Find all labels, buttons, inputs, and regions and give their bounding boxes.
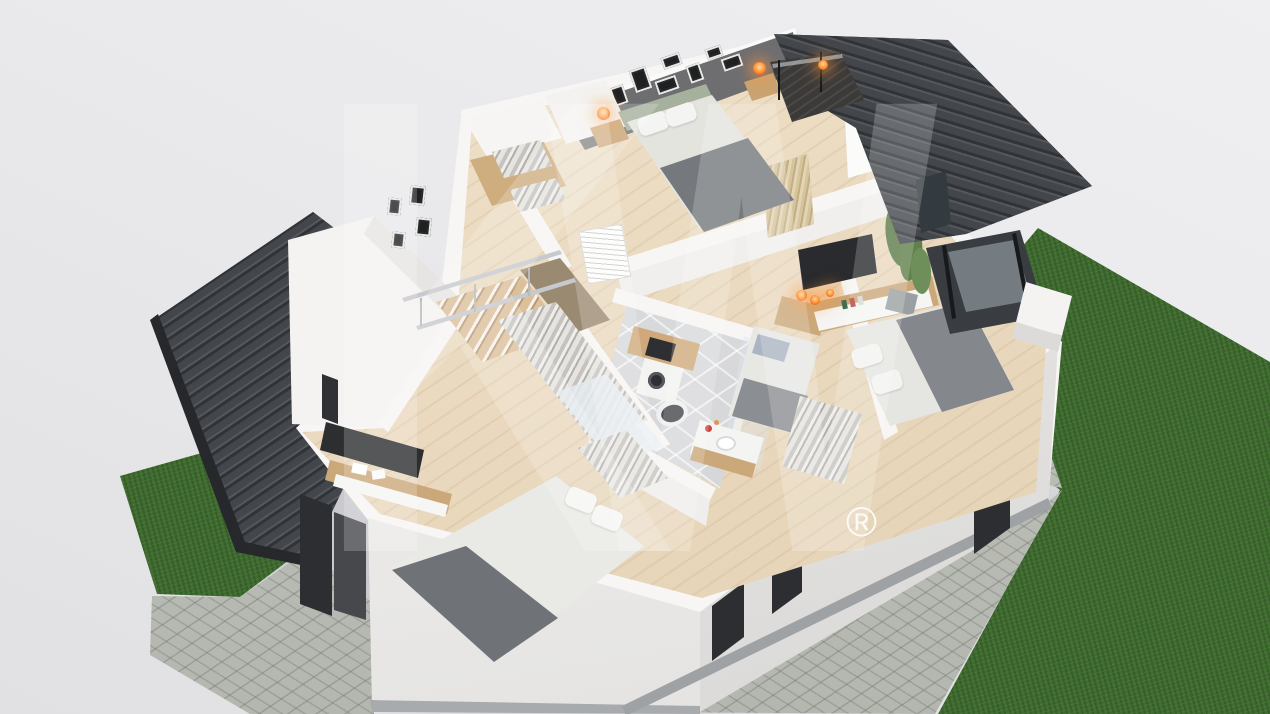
watermark-letter-w: W bbox=[545, 18, 938, 636]
watermark-registered-symbol: ® bbox=[846, 498, 877, 546]
floorplan-render-stage: K W ® bbox=[0, 0, 1270, 714]
